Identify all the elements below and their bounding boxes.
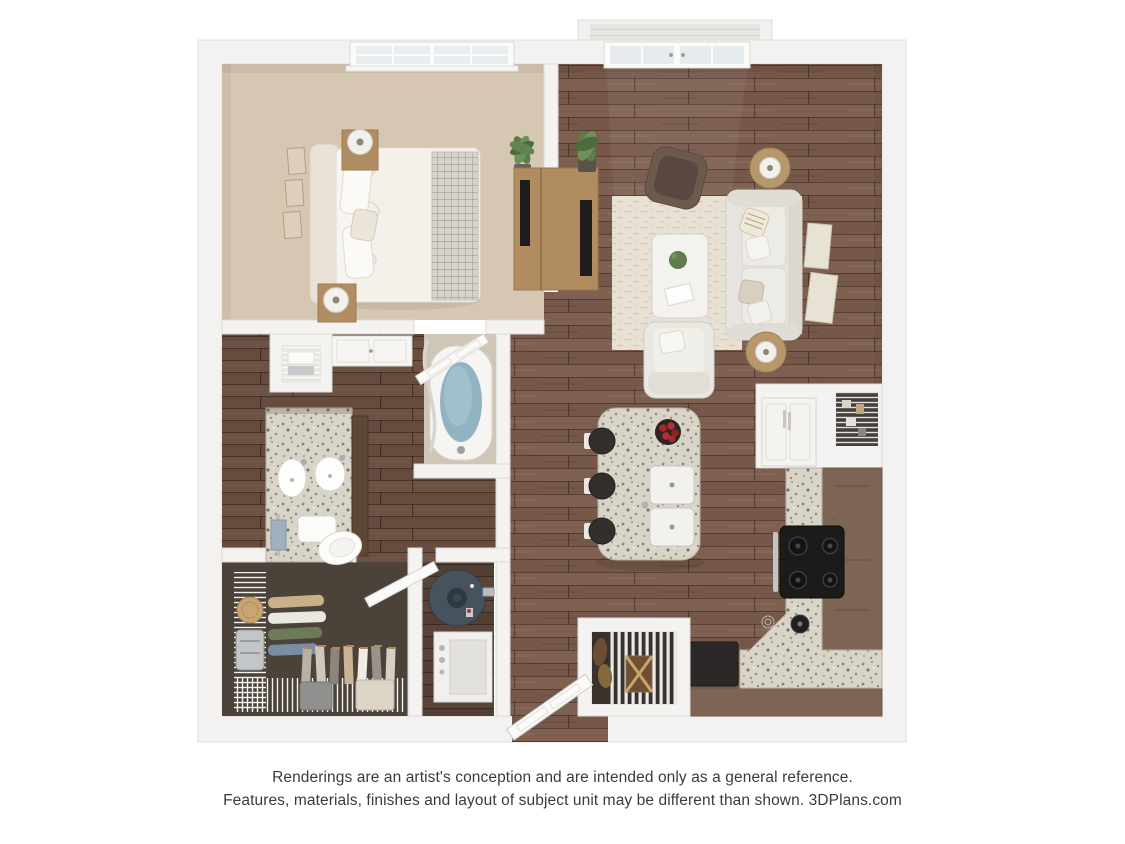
- fruit-bowl: [655, 419, 681, 445]
- interior-wall: [486, 320, 544, 334]
- washer-dryer: [434, 632, 492, 702]
- faucet: [301, 459, 307, 465]
- interior-wall: [436, 548, 510, 562]
- disclaimer-line-2: Features, materials, finishes and layout…: [0, 789, 1125, 812]
- storage-cabinet: [332, 336, 412, 366]
- disclaimer: Renderings are an artist's conception an…: [0, 766, 1125, 812]
- media-console: [514, 168, 598, 290]
- side-table: [746, 332, 786, 372]
- armchair: [644, 322, 714, 398]
- heater-pipe: [483, 588, 494, 596]
- refrigerator: [762, 398, 816, 466]
- tub-ledge-wall: [414, 464, 510, 478]
- basket: [356, 680, 394, 710]
- door-handle: [669, 53, 673, 57]
- disclaimer-line-1: Renderings are an artist's conception an…: [0, 766, 1125, 789]
- oven-handle: [773, 532, 778, 592]
- tub-faucet: [457, 446, 465, 454]
- hat-box: [237, 597, 263, 623]
- faucet: [339, 455, 345, 461]
- tv: [520, 180, 530, 246]
- floor-plan-render: [0, 0, 1125, 844]
- door-handle: [681, 53, 685, 57]
- window-sill: [346, 66, 518, 71]
- coffee-table: [652, 234, 708, 318]
- throw-pillow: [658, 330, 685, 354]
- range: [773, 526, 844, 598]
- cabinet-run: [660, 688, 882, 716]
- side-table: [750, 148, 790, 188]
- knit-throw: [432, 152, 478, 300]
- bedroom-window: [346, 42, 518, 71]
- sofa: [726, 190, 802, 340]
- nightstand: [342, 130, 378, 171]
- french-doors: [604, 42, 750, 68]
- accent-pillow: [350, 208, 379, 242]
- tv: [580, 200, 592, 276]
- linen-shelves: [270, 334, 332, 392]
- nightstand: [318, 284, 356, 322]
- pantry-shelves: [836, 392, 878, 446]
- towel-stack: [288, 352, 314, 364]
- wicker-basket: [626, 656, 652, 692]
- hamper: [236, 630, 264, 670]
- faucet: [642, 502, 649, 509]
- pot: [791, 615, 809, 633]
- throw-pillow: [745, 235, 771, 261]
- interior-wall: [496, 562, 510, 716]
- utility-closet: [429, 570, 494, 702]
- towel: [271, 520, 286, 550]
- interior-wall: [496, 334, 510, 562]
- coat-closet: [578, 618, 690, 716]
- balcony-deck: [590, 24, 760, 42]
- basket: [300, 682, 332, 710]
- towel-bar: [271, 514, 286, 556]
- table-plant: [669, 251, 687, 269]
- floor-plan-page: Renderings are an artist's conception an…: [0, 0, 1125, 844]
